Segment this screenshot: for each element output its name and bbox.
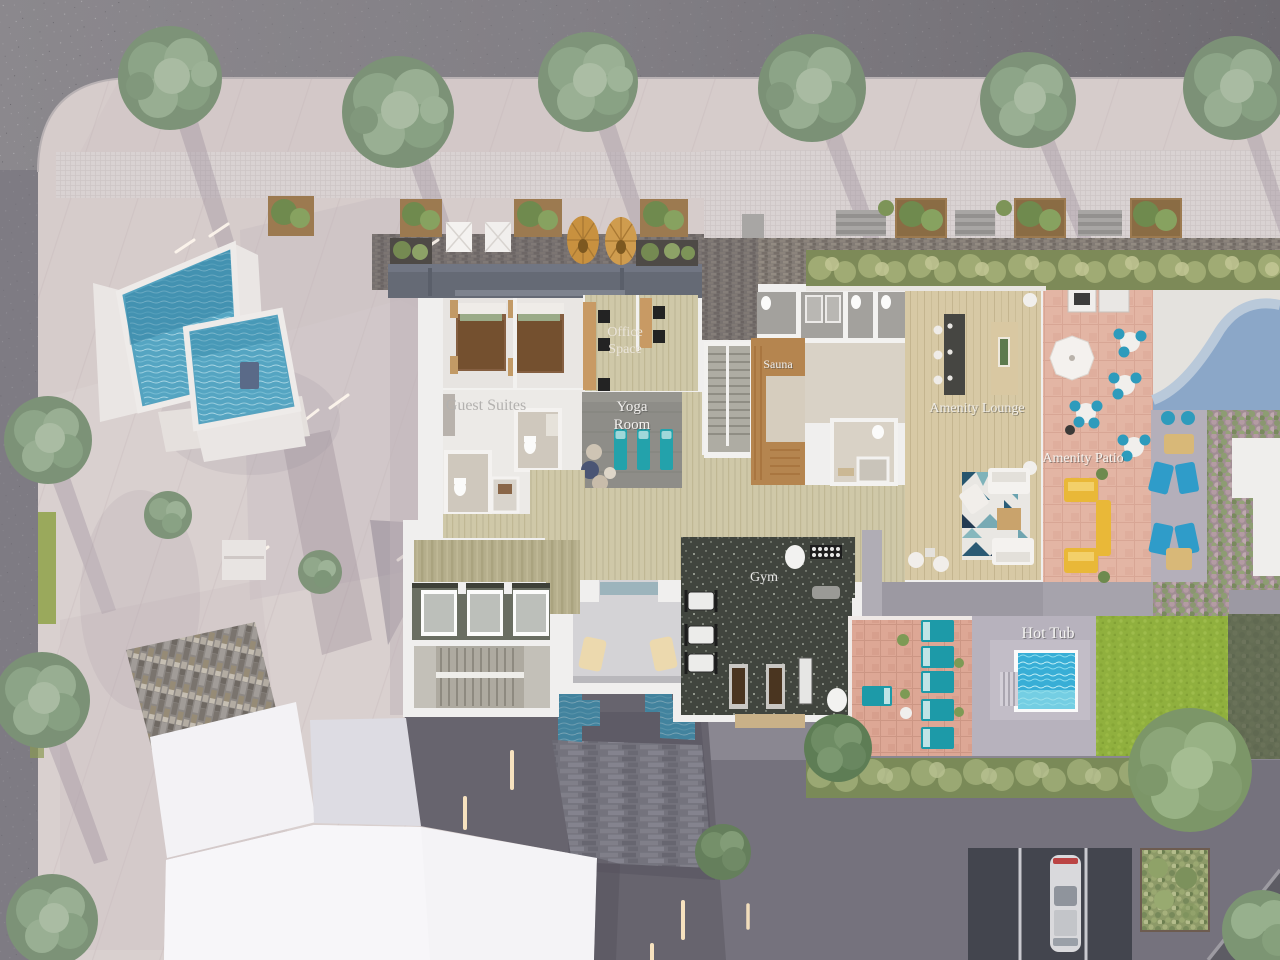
svg-text:Amenity Patio: Amenity Patio [1042, 451, 1123, 466]
svg-text:Amenity Lounge: Amenity Lounge [929, 401, 1024, 416]
svg-text:Space: Space [608, 342, 641, 357]
svg-text:Office: Office [607, 325, 643, 340]
svg-text:Gym: Gym [750, 570, 778, 585]
svg-text:Hot Tub: Hot Tub [1022, 625, 1075, 642]
svg-text:Yoga: Yoga [617, 399, 648, 415]
svg-text:Guest Suites: Guest Suites [446, 397, 526, 414]
svg-text:Room: Room [614, 417, 651, 433]
svg-text:Sauna: Sauna [763, 357, 793, 371]
